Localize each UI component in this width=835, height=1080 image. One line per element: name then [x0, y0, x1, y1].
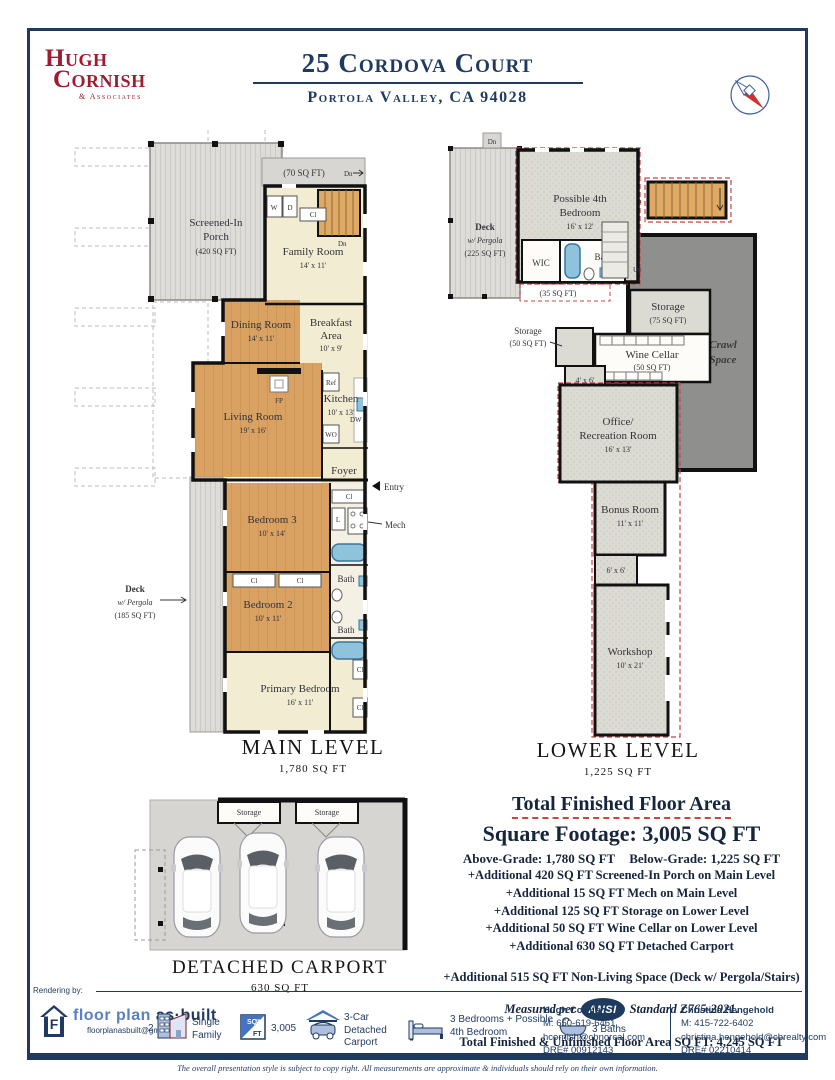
bathtub-icon — [332, 642, 366, 659]
agent-card-2: Christina Hengehold M: 415-722-6402 chri… — [681, 1004, 826, 1057]
svg-text:Storage: Storage — [237, 808, 262, 817]
agent-name: Christina Hengehold — [681, 1004, 826, 1017]
svg-text:F: F — [50, 1016, 59, 1032]
additional-line: +Additional 125 SQ FT Storage on Lower L… — [443, 903, 800, 921]
linen-label: L — [336, 516, 340, 524]
bathtub-icon — [332, 544, 366, 561]
svg-text:Kitchen: Kitchen — [324, 393, 359, 405]
svg-text:Dn: Dn — [488, 138, 497, 146]
svg-text:16' x 11': 16' x 11' — [287, 698, 314, 707]
agent-email[interactable]: hcornish@cbnorcal.com — [543, 1031, 645, 1044]
toilet-icon — [332, 611, 342, 623]
svg-text:Office/: Office/ — [603, 416, 635, 428]
landing-35: (35 SQ FT) — [520, 284, 610, 301]
svg-text:Dining Room: Dining Room — [231, 319, 292, 331]
main-level-sqft: 1,780 SQ FT — [163, 763, 463, 775]
svg-text:Wine Cellar: Wine Cellar — [625, 349, 678, 361]
svg-text:10' x 11': 10' x 11' — [255, 614, 282, 623]
room-bonus: Bonus Room 11' x 11' — [595, 482, 665, 555]
fact-bedrooms: 3 Bedrooms + Possible 4th Bedroom — [450, 1014, 554, 1039]
floorplan-flyer: Hugh Cornish & Associates 25 Cordova Cou… — [0, 0, 835, 1080]
svg-text:(50 SQ FT): (50 SQ FT) — [634, 363, 671, 372]
svg-text:Primary Bedroom: Primary Bedroom — [260, 683, 340, 695]
hugh-cornish-logo: Hugh Cornish & Associates — [45, 46, 146, 101]
nonliving-line: +Additional 515 SQ FT Non-Living Space (… — [443, 970, 800, 985]
svg-text:(420 SQ FT): (420 SQ FT) — [196, 247, 237, 256]
above-grade: Above-Grade: 1,780 SQ FT — [463, 851, 615, 866]
svg-text:Living Room: Living Room — [224, 411, 283, 423]
svg-text:10' x 13': 10' x 13' — [328, 408, 355, 417]
footer-divider — [96, 991, 802, 992]
main-level-title: MAIN LEVEL — [163, 735, 463, 760]
svg-text:Bedroom 2: Bedroom 2 — [243, 599, 292, 611]
agent-card-1: Hugh Cornish M: 650-619-6461 hcornish@cb… — [543, 1004, 645, 1057]
agent-dre: DRE# 02210414 — [681, 1044, 826, 1057]
car-2 — [237, 833, 289, 933]
svg-text:Entry: Entry — [384, 482, 404, 492]
svg-text:Recreation Room: Recreation Room — [579, 430, 657, 442]
svg-text:16' x 12': 16' x 12' — [567, 222, 594, 231]
floorplan-asbuilt-brand: F floor plan as·built floorplanasbuilt@g… — [40, 1005, 217, 1037]
entry-arrow: Entry — [372, 481, 404, 492]
svg-text:FP: FP — [275, 397, 283, 405]
additional-line: +Additional 630 SQ FT Detached Carport — [443, 938, 800, 956]
additional-line: +Additional 420 SQ FT Screened-In Porch … — [443, 867, 800, 885]
toilet-icon — [332, 589, 342, 601]
svg-text:(50 SQ FT): (50 SQ FT) — [510, 339, 547, 348]
summary-grades: Above-Grade: 1,780 SQ FTBelow-Grade: 1,2… — [443, 851, 800, 867]
room-6x6: 6' x 6' — [595, 555, 637, 585]
svg-text:Bath: Bath — [338, 574, 355, 584]
lower-level-floorplan: Dn Deck w/ Pergola (225 SQ FT) Crawl Spa… — [440, 130, 770, 780]
wall-oven-label: WO — [325, 431, 337, 439]
bathtub-icon — [565, 244, 580, 278]
hall-fixtures: Cl L Mech Bath Bath — [332, 490, 406, 659]
fact-sqft-value: 3,005 — [271, 1023, 296, 1036]
svg-text:10' x 14': 10' x 14' — [259, 529, 286, 538]
svg-text:Storage: Storage — [315, 808, 340, 817]
svg-text:Space: Space — [710, 354, 737, 366]
main-level-floorplan: Screened-In Porch (420 SQ FT) (70 SQ FT)… — [60, 130, 420, 780]
svg-text:Bedroom 3: Bedroom 3 — [247, 514, 297, 526]
svg-text:(185 SQ FT): (185 SQ FT) — [115, 611, 156, 620]
room-office: Office/ Recreation Room 16' x 13' — [560, 385, 677, 482]
building-icon — [156, 1010, 188, 1040]
toilet-icon — [584, 268, 594, 280]
logo-line3: & Associates — [79, 93, 146, 101]
svg-text:Storage: Storage — [651, 301, 685, 313]
below-grade: Below-Grade: 1,225 SQ FT — [629, 851, 780, 866]
fact-carport: 3-Car Detached Carport — [344, 1012, 400, 1050]
agent-divider — [670, 1004, 671, 1050]
svg-text:FT: FT — [253, 1031, 262, 1038]
svg-text:w/ Pergola: w/ Pergola — [117, 598, 152, 607]
agent-phone: M: 650-619-6461 — [543, 1017, 645, 1030]
svg-text:(225 SQ FT): (225 SQ FT) — [465, 249, 506, 258]
room-storage-50: Storage (50 SQ FT) — [510, 326, 593, 366]
svg-text:14' x 11': 14' x 11' — [300, 261, 327, 270]
rendering-by-label: Rendering by: — [33, 986, 83, 995]
svg-text:19' x 16': 19' x 16' — [240, 426, 267, 435]
svg-text:Possible 4th: Possible 4th — [553, 193, 607, 205]
room-dining — [223, 300, 300, 363]
car-3 — [315, 837, 367, 937]
exterior-stair-strip: (70 SQ FT) Dn — [262, 158, 365, 186]
lower-level-sqft: 1,225 SQ FT — [468, 766, 768, 778]
svg-text:Breakfast: Breakfast — [310, 317, 352, 329]
svg-text:Bath: Bath — [338, 625, 355, 635]
svg-text:Cl: Cl — [357, 704, 364, 712]
svg-text:Crawl: Crawl — [709, 339, 737, 351]
dishwasher-label: DW — [350, 416, 362, 424]
logo-line2: Cornish — [53, 67, 146, 92]
stories-count: 2 — [148, 1023, 154, 1036]
carport-sqft: 630 SQ FT — [130, 982, 430, 994]
svg-text:(75 SQ FT): (75 SQ FT) — [650, 316, 687, 325]
fact-single-family: Single Family — [192, 1017, 238, 1042]
svg-text:Bedroom: Bedroom — [560, 207, 601, 219]
disclaimer-text: The overall presentation style is subjec… — [0, 1063, 835, 1073]
additional-line: +Additional 15 SQ FT Mech on Main Level — [443, 885, 800, 903]
room-wine-cellar: Wine Cellar (50 SQ FT) — [595, 334, 710, 382]
carport-diagram: Storage Storage — [130, 795, 420, 960]
svg-text:10' x 21': 10' x 21' — [617, 661, 644, 670]
summary-title: Total Finished Floor Area — [512, 793, 731, 819]
floorplan-asbuilt-logo-icon: F — [40, 1005, 68, 1037]
bed-icon — [408, 1019, 444, 1041]
sqft-icon: SQ FT — [240, 1014, 266, 1040]
main-level-caption: MAIN LEVEL 1,780 SQ FT — [163, 735, 463, 775]
additional-line: +Additional 50 SQ FT Wine Cellar on Lowe… — [443, 920, 800, 938]
lower-level-title: LOWER LEVEL — [468, 738, 768, 763]
room-storage-75: Storage (75 SQ FT) — [630, 290, 710, 334]
svg-text:(70 SQ FT): (70 SQ FT) — [283, 168, 325, 178]
svg-text:Porch: Porch — [203, 231, 229, 243]
svg-text:14' x 11': 14' x 11' — [248, 334, 275, 343]
carport-title: DETACHED CARPORT — [130, 957, 430, 979]
agent-dre: DRE# 00912143 — [543, 1044, 645, 1057]
agent-name: Hugh Cornish — [543, 1004, 645, 1017]
stairs-lower: Up — [631, 178, 732, 222]
svg-text:Cl: Cl — [297, 577, 304, 585]
svg-text:Deck: Deck — [475, 222, 495, 232]
room-deck-lower: Dn Deck w/ Pergola (225 SQ FT) — [448, 133, 522, 299]
svg-text:Up: Up — [633, 266, 642, 274]
svg-text:Mech: Mech — [385, 520, 406, 530]
room-workshop: Workshop 10' x 21' — [595, 585, 670, 735]
svg-text:Family Room: Family Room — [283, 246, 344, 258]
lower-level-caption: LOWER LEVEL 1,225 SQ FT — [468, 738, 768, 778]
compass-icon — [725, 70, 775, 120]
svg-text:Workshop: Workshop — [608, 646, 653, 658]
svg-text:Deck: Deck — [125, 584, 145, 594]
carport-caption: DETACHED CARPORT 630 SQ FT — [130, 957, 430, 994]
svg-text:w/ Pergola: w/ Pergola — [467, 236, 502, 245]
car-1 — [171, 837, 223, 937]
svg-text:Cl: Cl — [251, 577, 258, 585]
svg-text:WIC: WIC — [532, 258, 550, 268]
carport-icon — [306, 1010, 340, 1040]
svg-text:16' x 13': 16' x 13' — [605, 445, 632, 454]
svg-text:(35 SQ FT): (35 SQ FT) — [540, 289, 577, 298]
page-title: 25 Cordova Court — [253, 48, 583, 84]
washer-label: W — [271, 204, 278, 212]
svg-text:Cl: Cl — [357, 666, 364, 674]
deck-pergola-strip — [190, 477, 223, 732]
agent-email[interactable]: christina.hengehold@cbrealty.com — [681, 1031, 826, 1044]
svg-text:Cl: Cl — [346, 493, 353, 501]
agent-phone: M: 415-722-6402 — [681, 1017, 826, 1030]
porch-label: Screened-In — [189, 217, 243, 229]
svg-text:Foyer: Foyer — [331, 465, 357, 477]
page-subtitle: Portola Valley, CA 94028 — [240, 89, 595, 107]
deck-label: Deck w/ Pergola (185 SQ FT) — [115, 584, 186, 620]
svg-text:11' x 11': 11' x 11' — [617, 519, 644, 528]
svg-text:10' x 9': 10' x 9' — [320, 344, 343, 353]
brand-name-1: floor plan — [73, 1007, 151, 1024]
svg-text:6' x 6': 6' x 6' — [607, 566, 626, 575]
svg-text:Bonus Room: Bonus Room — [601, 504, 659, 516]
dn-label: Dn — [344, 170, 353, 178]
header-title-block: 25 Cordova Court Portola Valley, CA 9402… — [240, 48, 595, 107]
room-bedroom3 — [225, 483, 330, 572]
svg-text:Storage: Storage — [514, 326, 542, 336]
svg-text:Area: Area — [320, 330, 341, 342]
summary-square-footage: Square Footage: 3,005 SQ FT — [443, 821, 800, 847]
svg-text:Cl: Cl — [310, 211, 317, 219]
dryer-label: D — [287, 204, 292, 212]
fridge-label: Ref — [326, 379, 337, 387]
